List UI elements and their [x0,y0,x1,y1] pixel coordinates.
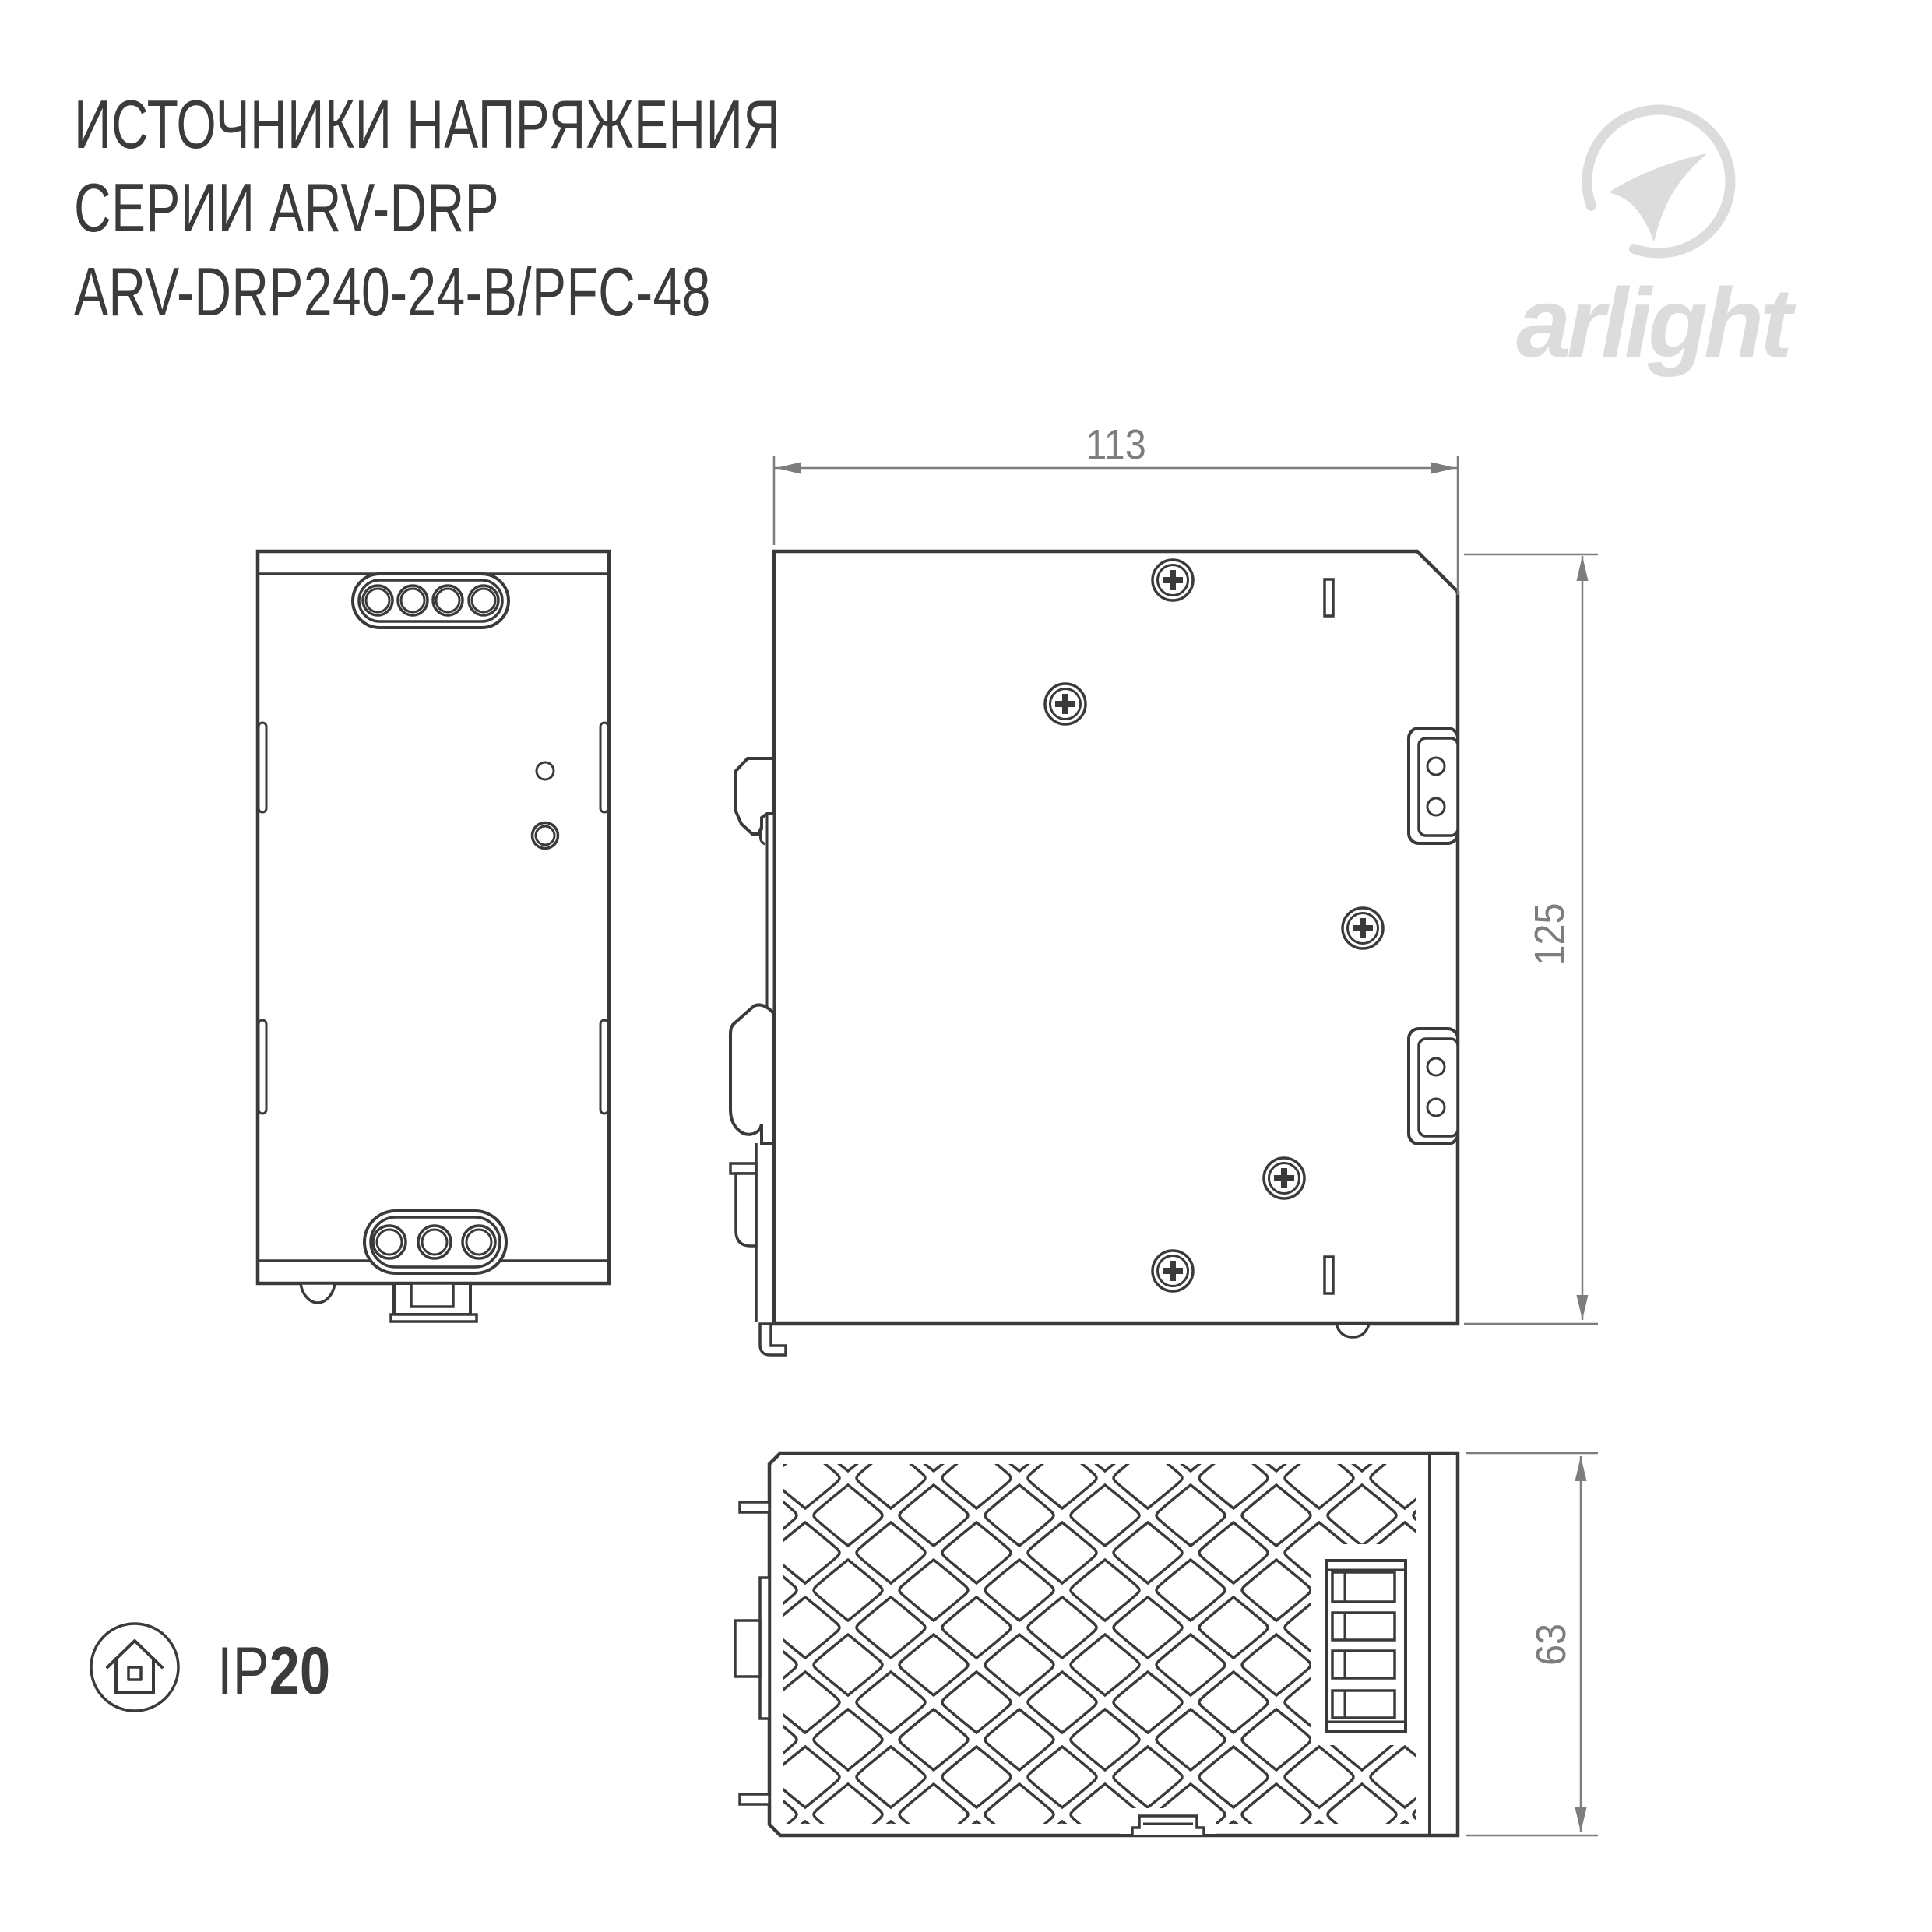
ip-rating-prefix: IP [217,1634,269,1709]
output-terminal-holes [373,1226,495,1258]
house-enclosure-icon [91,1624,178,1711]
ip-rating-badge: IP20 [217,1638,330,1705]
bottom-view-drawing [735,1453,1458,1835]
front-view-drawing [258,551,609,1321]
arlight-logo-icon [1587,110,1730,253]
dimension-label-depth: 63 [1530,1624,1572,1666]
terminal-block [1326,1561,1406,1731]
dimension-label-width: 113 [1086,424,1145,466]
side-view-drawing [730,551,1458,1355]
page-root: ИСТОЧНИКИ НАПРЯЖЕНИЯ СЕРИИ ARV-DRP ARV-D… [0,0,1932,1932]
ip-rating-value: 20 [269,1634,330,1709]
dimension-label-height: 125 [1529,903,1571,966]
